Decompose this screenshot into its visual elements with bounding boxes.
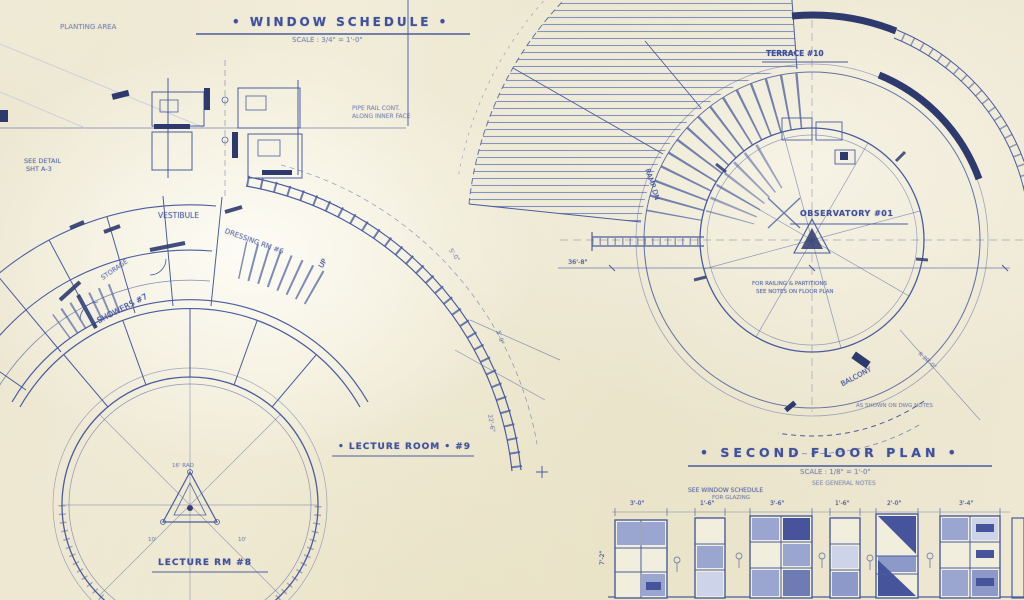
ws-dim-2: 1'-6": [700, 501, 714, 507]
ws-dim-4: 1'-6": [835, 501, 849, 507]
window-type-2: [695, 518, 725, 598]
ws-side-dim: 7'-2": [600, 551, 606, 565]
rotunda-radius-label: 16' RAD: [172, 464, 194, 470]
window-schedule-title: • WINDOW SCHEDULE •: [232, 16, 449, 28]
window-type-3: [750, 516, 812, 598]
second-floor-plan-title: • SECOND FLOOR PLAN •: [700, 447, 960, 460]
center-note-line2: SEE NOTES ON FLOOR PLAN: [756, 290, 834, 296]
rotunda-dim-d: 10': [148, 538, 157, 544]
second-floor-scale: SCALE : 1/8" = 1'-0": [800, 469, 871, 476]
ws-dim-6: 3'-4": [959, 501, 973, 507]
ws-dim-5: 2'-0": [887, 501, 901, 507]
window-type-4: [830, 518, 860, 598]
detail-note-line2: SHT A-3: [26, 166, 52, 173]
window-type-5: [876, 514, 918, 598]
second-floor-note: SEE GENERAL NOTES: [812, 481, 876, 487]
lecture-room-8-label: LECTURE RM #8: [158, 559, 252, 568]
window-type-7-partial: [1012, 518, 1024, 598]
rotunda-dim-e: 10': [238, 538, 247, 544]
first-floor-plan-drawing: [0, 60, 560, 600]
window-type-6: [940, 516, 1000, 598]
blueprint-linework: [0, 0, 1024, 600]
observatory-label: OBSERVATORY #01: [800, 210, 893, 218]
window-schedule-scale: SCALE : 3/4" = 1'-0": [292, 37, 363, 44]
balcony-note: AS SHOWN ON DWG NOTES: [856, 404, 933, 410]
second-floor-plan-drawing: [458, 0, 1024, 454]
dim-36-label: 36'-8": [568, 259, 588, 266]
planting-area-label: PLANTING AREA: [60, 24, 116, 31]
window-schedule-drawing: [608, 508, 1024, 598]
ws-dim-1: 3'-0": [630, 501, 644, 507]
rail-note-line2: ALONG INNER FACE: [352, 114, 411, 120]
rail-note-line1: PIPE RAIL CONT.: [352, 106, 400, 112]
vestibule-label: VESTIBULE: [158, 212, 199, 220]
ws-dim-3: 3'-6": [770, 501, 784, 507]
window-type-1: [615, 520, 667, 598]
center-note-line1: FOR RAILING & PARTITIONS: [752, 282, 827, 288]
lecture-room-9-label: • LECTURE ROOM • #9: [338, 443, 471, 452]
ws-note-line2: FOR GLAZING: [712, 496, 750, 502]
detail-note-line1: SEE DETAIL: [24, 158, 61, 165]
blueprint-sheet: • WINDOW SCHEDULE • SCALE : 3/4" = 1'-0"…: [0, 0, 1024, 600]
terrace-label: TERRACE #10: [766, 50, 824, 58]
ws-note-line1: SEE WINDOW SCHEDULE: [688, 488, 763, 494]
